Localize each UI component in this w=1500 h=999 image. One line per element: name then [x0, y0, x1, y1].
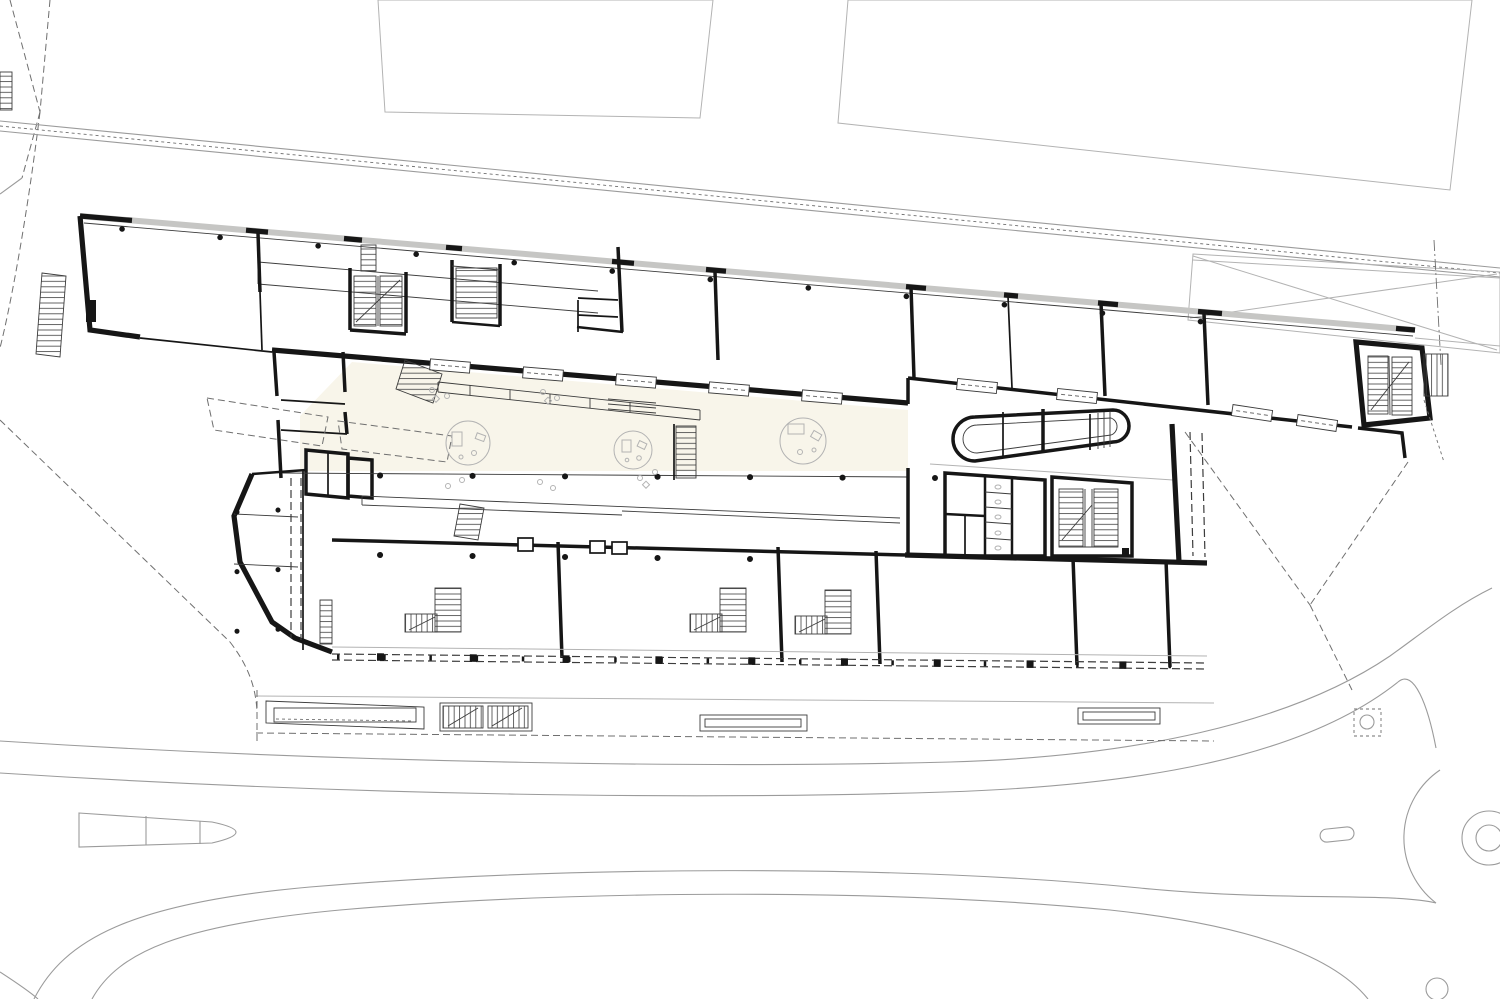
west-wall-pier	[86, 300, 96, 322]
road-lower-south-edge	[92, 894, 1368, 999]
road-upper-south-edge	[0, 679, 1436, 796]
main-stair-core	[1052, 477, 1132, 556]
floor-plan-canvas	[0, 0, 1500, 999]
roads	[0, 588, 1500, 999]
traffic-island-east	[1319, 826, 1354, 842]
south-walkway	[256, 690, 1214, 742]
pill-core	[953, 409, 1129, 461]
colonnade-line	[282, 473, 908, 477]
site-edge-stair	[0, 72, 12, 110]
upper-wing	[80, 216, 1208, 405]
stair-core-mid	[452, 260, 500, 326]
wc-block	[945, 473, 1045, 556]
ne-exterior-stair	[1424, 354, 1448, 396]
planter-3	[1078, 708, 1160, 724]
rail-line	[0, 121, 1500, 268]
traffic-island-west	[79, 813, 236, 847]
facade-columns	[122, 229, 1205, 322]
lower-wing-columns	[380, 555, 750, 559]
planter-2	[700, 715, 807, 731]
neighbor-building-west	[378, 0, 713, 118]
property-boundary	[0, 0, 1500, 712]
vehicle-ramp	[1188, 240, 1500, 365]
north-facade	[80, 216, 1415, 336]
southwest-prow	[234, 470, 332, 652]
planter-1	[266, 701, 424, 729]
tree-pit	[1354, 709, 1381, 736]
exterior-stair-west	[36, 273, 66, 357]
northeast-wing	[1185, 342, 1448, 690]
neighbor-buildings	[378, 0, 1472, 190]
stair-core-west	[350, 245, 406, 334]
ne-stair-core	[1356, 342, 1430, 425]
roundabout	[1404, 770, 1500, 999]
site-context	[0, 0, 1500, 999]
gallery	[258, 262, 598, 313]
road-lower-north-edge	[34, 871, 1436, 999]
neighbor-building-east	[838, 0, 1472, 190]
walkway-stairs	[440, 703, 532, 731]
east-block	[905, 378, 1352, 563]
terrace-steps	[454, 504, 484, 540]
building	[36, 216, 1448, 742]
plan-sheet	[0, 0, 1500, 999]
